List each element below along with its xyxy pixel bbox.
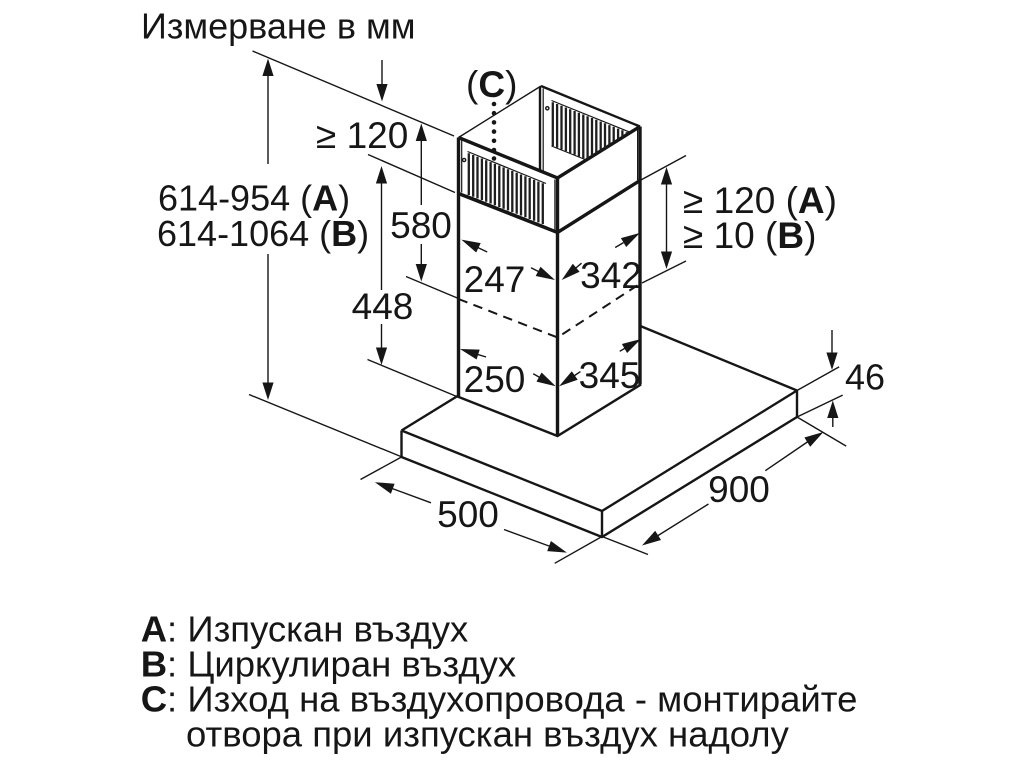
svg-text:250: 250	[464, 359, 526, 400]
svg-text:≥ 120: ≥ 120	[316, 115, 408, 156]
svg-text:500: 500	[437, 494, 499, 535]
svg-text:580: 580	[390, 205, 452, 246]
svg-text:247: 247	[464, 259, 526, 300]
svg-text:(C): (C)	[466, 64, 517, 105]
svg-text:448: 448	[352, 286, 414, 327]
svg-text:отвора при изпускан въздух над: отвора при изпускан въздух надолу	[186, 714, 790, 755]
svg-text:614-1064 (B): 614-1064 (B)	[157, 213, 369, 254]
svg-text:345: 345	[579, 355, 641, 396]
svg-text:46: 46	[845, 357, 885, 398]
svg-text:Измерване в мм: Измерване в мм	[141, 6, 415, 47]
svg-text:900: 900	[708, 469, 770, 510]
svg-text:342: 342	[580, 255, 642, 296]
svg-text:≥ 10 (B): ≥ 10 (B)	[683, 215, 816, 256]
